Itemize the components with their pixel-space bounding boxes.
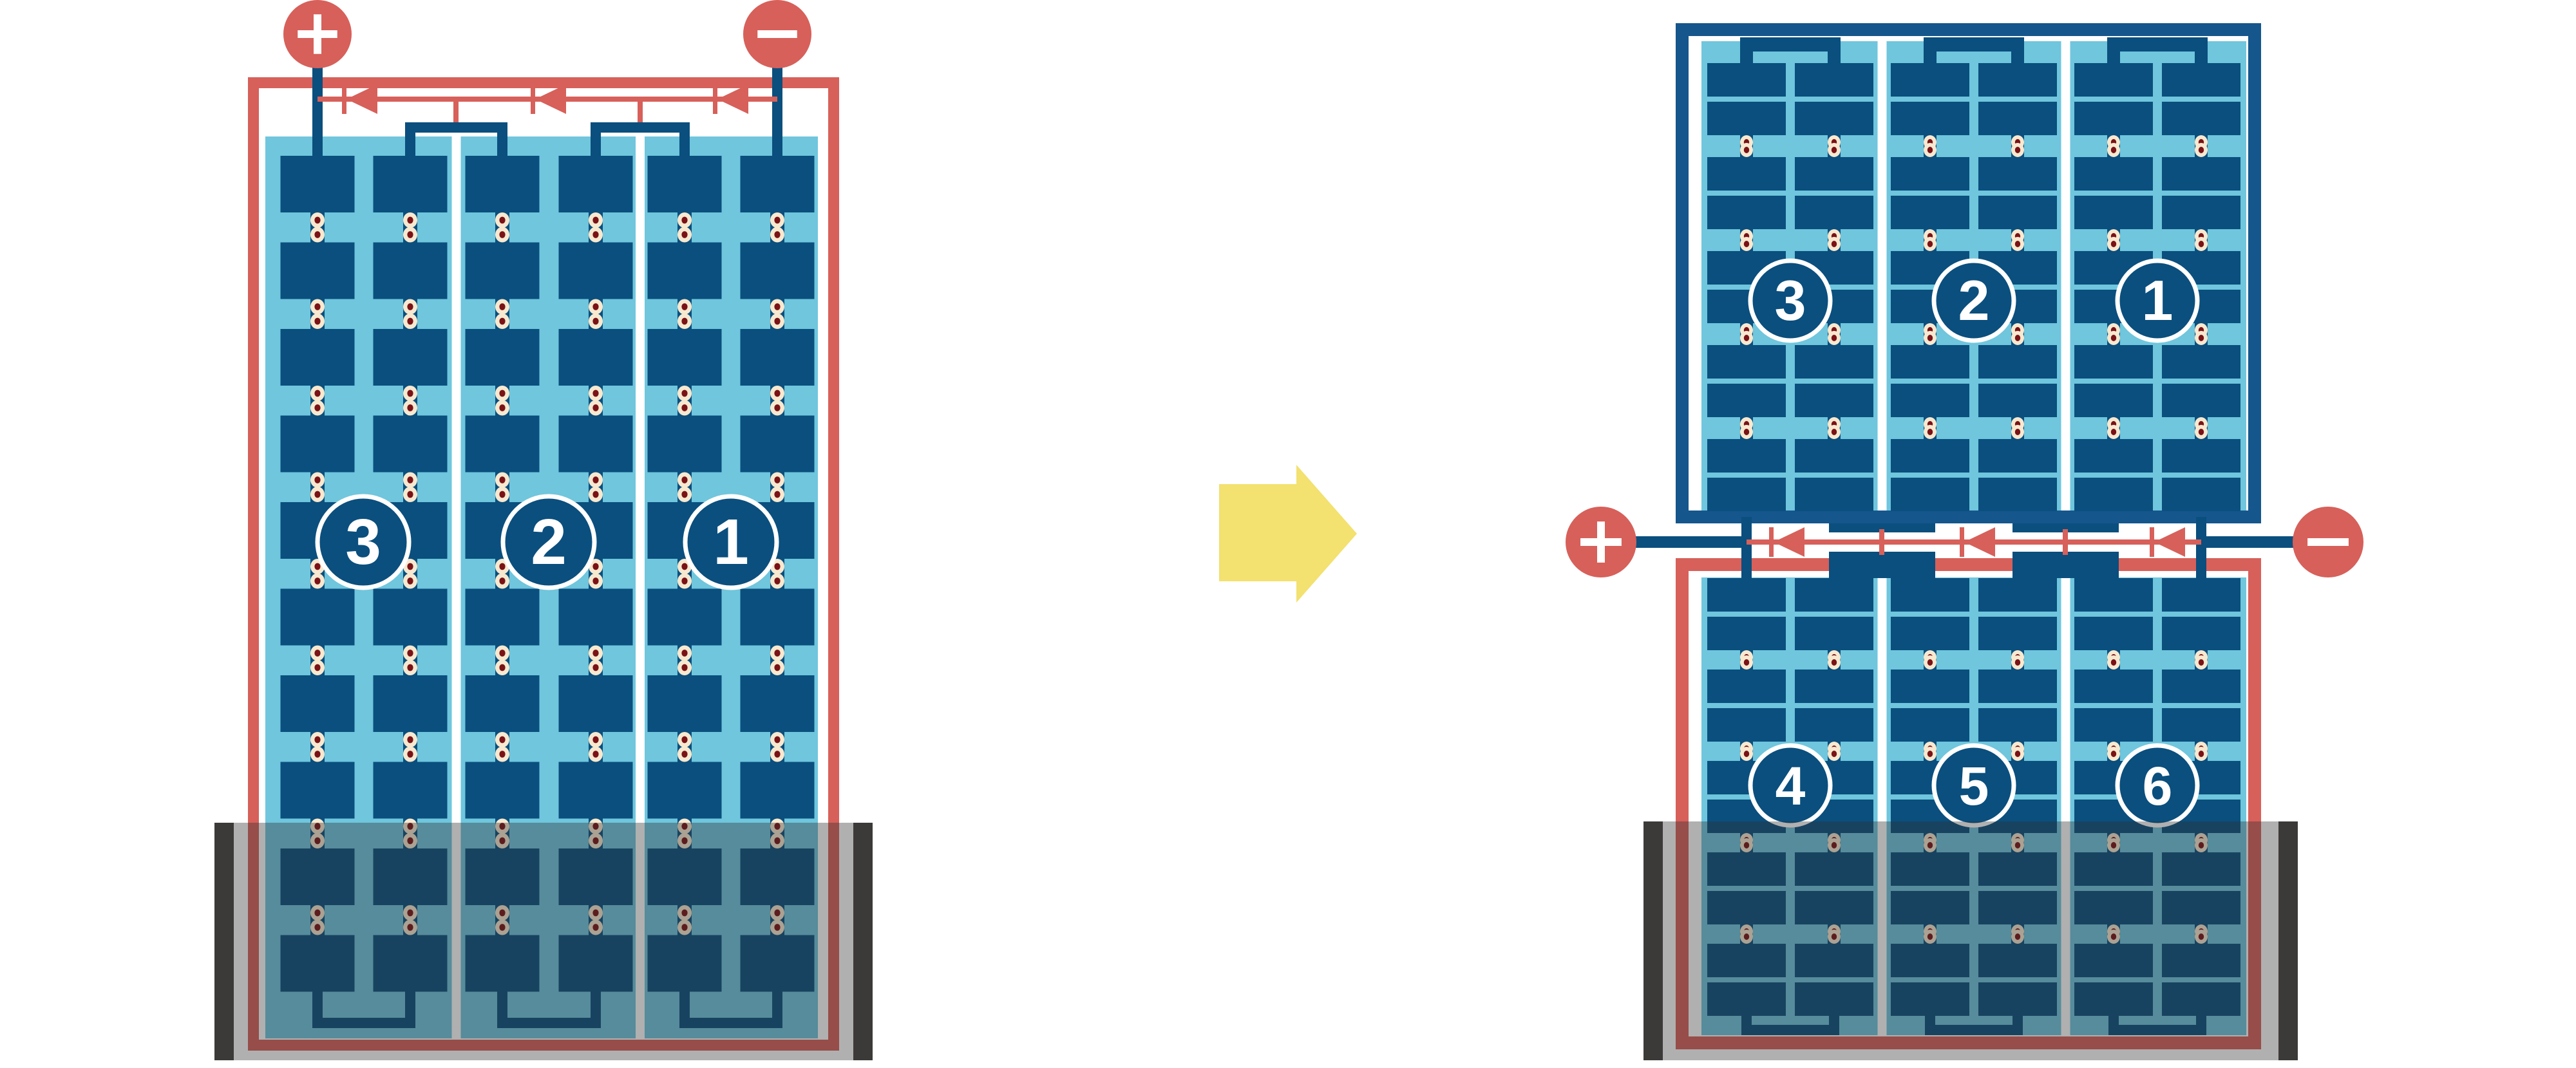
- solar-cell: [1891, 384, 1969, 417]
- solder-dot-core: [407, 563, 413, 570]
- solar-cell: [1978, 63, 2057, 97]
- solar-cell: [1978, 578, 2057, 612]
- solder-dot-core: [774, 318, 780, 325]
- solder-dot-core: [2111, 659, 2116, 666]
- solar-cell: [1891, 670, 1969, 703]
- series-jumper-leg: [405, 122, 415, 156]
- solar-cell: [1795, 157, 1873, 191]
- solar-cell: [648, 416, 722, 473]
- solar-cell: [741, 329, 815, 386]
- solar-cell: [559, 762, 633, 819]
- solder-dot-core: [314, 404, 320, 411]
- solder-dot-core: [681, 664, 687, 671]
- solder-dot-core: [314, 231, 320, 238]
- solar-cell: [1978, 196, 2057, 229]
- solar-cell: [559, 156, 633, 212]
- solar-cell: [1978, 384, 2057, 417]
- solar-cell: [466, 589, 540, 646]
- solar-cell: [1707, 102, 1786, 135]
- solar-cell: [1707, 708, 1786, 742]
- solder-dot-core: [681, 303, 687, 310]
- solar-cell: [1707, 439, 1786, 473]
- right-arrow-icon: [1219, 465, 1357, 603]
- solder-dot-core: [407, 217, 413, 224]
- substring-label: 2: [1958, 268, 1990, 332]
- solder-dot-core: [592, 476, 598, 483]
- shade-post: [2278, 821, 2298, 1060]
- solder-dot-core: [592, 404, 598, 411]
- substring-label: 2: [531, 506, 567, 578]
- solar-cell: [1978, 478, 2057, 511]
- solar-cell: [1707, 63, 1786, 97]
- shade-post: [214, 823, 234, 1060]
- solar-cell: [1891, 63, 1969, 97]
- solder-dot-core: [1927, 241, 1933, 247]
- solder-dot-core: [774, 404, 780, 411]
- solder-dot-core: [407, 390, 413, 397]
- solar-cell: [1795, 384, 1873, 417]
- split-jumper-tab: [2012, 552, 2119, 578]
- solar-cell: [1891, 478, 1969, 511]
- solder-dot-core: [2199, 429, 2204, 435]
- solar-cell: [1795, 708, 1873, 742]
- solar-cell: [374, 589, 448, 646]
- solder-dot-core: [592, 563, 598, 570]
- solar-cell: [648, 156, 722, 212]
- solder-dot-core: [2111, 147, 2116, 153]
- solder-dot-core: [2015, 147, 2020, 153]
- solder-dot-core: [2111, 751, 2116, 757]
- solar-cell: [466, 416, 540, 473]
- solar-cell: [1891, 102, 1969, 135]
- solder-dot-core: [499, 563, 505, 570]
- minus-icon: [757, 30, 797, 38]
- solder-dot-core: [499, 751, 505, 758]
- solder-dot-core: [407, 318, 413, 325]
- solar-cell: [1978, 617, 2057, 650]
- solder-dot-core: [774, 390, 780, 397]
- shape: [757, 30, 797, 38]
- column-gap: [2061, 41, 2070, 511]
- solar-cell: [2074, 439, 2153, 473]
- solder-dot-core: [592, 664, 598, 671]
- solder-dot-core: [592, 577, 598, 585]
- solar-cell: [281, 156, 355, 212]
- solar-cell: [1795, 345, 1873, 379]
- solar-cell: [2162, 63, 2240, 97]
- solder-dot-core: [407, 231, 413, 238]
- solder-dot-core: [774, 563, 780, 570]
- solar-cell: [1707, 670, 1786, 703]
- bypass-diode-icon: [1774, 527, 1804, 557]
- solder-dot-core: [314, 303, 320, 310]
- series-jumper-leg: [2195, 52, 2208, 64]
- bus-stub: [1879, 529, 1884, 555]
- solder-dot-core: [314, 390, 320, 397]
- solar-cell: [1891, 157, 1969, 191]
- solder-dot-core: [499, 664, 505, 671]
- solar-cell: [1891, 617, 1969, 650]
- shade-post: [1643, 821, 1663, 1060]
- minus-icon: [2307, 538, 2349, 546]
- solar-cell: [559, 329, 633, 386]
- solder-dot-core: [1744, 659, 1749, 666]
- substring-label: 3: [345, 506, 381, 578]
- solar-cell: [1978, 670, 2057, 703]
- solder-dot-core: [1744, 751, 1749, 757]
- solder-dot-core: [2199, 751, 2204, 757]
- solar-cell: [648, 243, 722, 299]
- solder-dot-core: [2015, 751, 2020, 757]
- solder-dot-core: [681, 563, 687, 570]
- solar-cell: [1978, 345, 2057, 379]
- solar-cell: [648, 762, 722, 819]
- solder-dot-core: [407, 736, 413, 744]
- solar-cell: [1707, 384, 1786, 417]
- solar-cell: [1707, 345, 1786, 379]
- solar-cell: [648, 675, 722, 732]
- solder-dot-core: [2015, 335, 2020, 341]
- solar-cell: [1795, 617, 1873, 650]
- solar-cell: [2074, 345, 2153, 379]
- solar-cell: [2162, 439, 2240, 473]
- solar-cell: [1795, 578, 1873, 612]
- solder-dot-core: [681, 577, 687, 585]
- shape: [314, 14, 321, 53]
- bypass-diode-icon: [535, 84, 566, 114]
- solder-dot-core: [499, 390, 505, 397]
- solder-dot-core: [592, 751, 598, 758]
- solar-cell: [2162, 708, 2240, 742]
- solder-dot-core: [314, 736, 320, 744]
- solar-cell: [1891, 196, 1969, 229]
- solar-cell: [281, 675, 355, 732]
- series-jumper: [1924, 37, 2024, 52]
- solar-cell: [1707, 157, 1786, 191]
- series-jumper-leg: [1828, 52, 1841, 64]
- solder-dot-core: [314, 751, 320, 758]
- solar-cell: [741, 243, 815, 299]
- diode-cathode-bar: [713, 84, 717, 114]
- solder-dot-core: [774, 650, 780, 657]
- solar-cell: [466, 329, 540, 386]
- transform-arrow-icon: [1219, 465, 1357, 603]
- solar-cell: [2162, 478, 2240, 511]
- series-jumper-leg: [1924, 52, 1937, 64]
- solder-dot-core: [407, 650, 413, 657]
- solar-cell: [2074, 670, 2153, 703]
- solar-cell: [374, 156, 448, 212]
- series-jumper: [405, 122, 507, 133]
- solar-cell: [741, 416, 815, 473]
- solar-cell: [741, 675, 815, 732]
- solder-dot-core: [407, 491, 413, 498]
- shape: [1597, 521, 1605, 563]
- solder-dot-core: [774, 231, 780, 238]
- solder-dot-core: [1744, 429, 1749, 435]
- solar-cell: [2074, 578, 2153, 612]
- solar-cell: [374, 762, 448, 819]
- solder-dot-core: [2111, 335, 2116, 341]
- solar-cell: [1891, 708, 1969, 742]
- solder-dot-core: [681, 476, 687, 483]
- solder-dot-core: [774, 303, 780, 310]
- solder-dot-core: [681, 404, 687, 411]
- solar-cell: [2074, 157, 2153, 191]
- solder-dot-core: [681, 491, 687, 498]
- solar-cell: [2162, 578, 2240, 612]
- column-gap: [1878, 41, 1887, 511]
- diode-cathode-bar: [2150, 527, 2154, 557]
- solar-cell: [648, 589, 722, 646]
- solar-cell: [1795, 102, 1873, 135]
- solder-dot-core: [314, 318, 320, 325]
- positive-lead: [1633, 536, 1741, 548]
- solder-dot-core: [314, 563, 320, 570]
- series-jumper-leg: [679, 122, 690, 156]
- solder-dot-core: [592, 303, 598, 310]
- solar-cell: [1978, 102, 2057, 135]
- series-jumper: [1740, 37, 1841, 52]
- negative-lead: [2206, 536, 2294, 548]
- solar-cell: [559, 589, 633, 646]
- solar-cell: [2074, 102, 2153, 135]
- solder-dot-core: [1744, 335, 1749, 341]
- solar-cell: [1795, 439, 1873, 473]
- series-jumper: [591, 122, 690, 133]
- solar-cell: [374, 243, 448, 299]
- solder-dot-core: [592, 736, 598, 744]
- solder-dot-core: [1832, 751, 1837, 757]
- solar-cell: [741, 589, 815, 646]
- solar-cell: [1707, 578, 1786, 612]
- solar-cell: [1891, 439, 1969, 473]
- solar-cell: [374, 675, 448, 732]
- bypass-diode-icon: [346, 84, 377, 114]
- solar-cell: [2074, 478, 2153, 511]
- solder-dot-core: [499, 577, 505, 585]
- solder-dot-core: [2015, 429, 2020, 435]
- series-jumper-leg: [2011, 52, 2024, 64]
- shade-overlays: [214, 821, 2298, 1060]
- solder-dot-core: [499, 303, 505, 310]
- negative-lead: [772, 64, 782, 156]
- split-jumper-tab: [1829, 552, 1935, 578]
- solar-cell: [1707, 478, 1786, 511]
- solder-dot-core: [681, 231, 687, 238]
- solar-cell: [2074, 617, 2153, 650]
- solder-dot-core: [681, 390, 687, 397]
- solar-cell: [2162, 102, 2240, 135]
- solar-cell: [2074, 196, 2153, 229]
- solar-cell: [1707, 617, 1786, 650]
- junction-vertical-link: [1741, 517, 1752, 578]
- substring-label: 6: [2143, 756, 2173, 816]
- solder-dot-core: [407, 751, 413, 758]
- solder-dot-core: [314, 664, 320, 671]
- solar-cell: [281, 243, 355, 299]
- shade-overlay: [1643, 821, 2298, 1060]
- diode-cathode-bar: [342, 84, 346, 114]
- bypass-diode-icon: [1964, 527, 1995, 557]
- solder-dot-core: [592, 231, 598, 238]
- solder-dot-core: [774, 491, 780, 498]
- solder-dot-core: [1927, 147, 1933, 153]
- positive-lead: [312, 64, 323, 156]
- solder-dot-core: [681, 318, 687, 325]
- solder-dot-core: [499, 476, 505, 483]
- solder-dot-core: [774, 577, 780, 585]
- solar-cell: [374, 329, 448, 386]
- solar-cell: [466, 243, 540, 299]
- solder-dot-core: [407, 303, 413, 310]
- bypass-diode-icon: [717, 84, 748, 114]
- solder-dot-core: [774, 751, 780, 758]
- solder-dot-core: [1832, 241, 1837, 247]
- diode-cathode-bar: [531, 84, 535, 114]
- solder-dot-core: [1927, 429, 1933, 435]
- solar-cell: [1707, 196, 1786, 229]
- solar-cell: [281, 329, 355, 386]
- solar-cell: [2162, 345, 2240, 379]
- diagram-canvas: 321 321 456: [0, 0, 2576, 1068]
- solar-cell: [281, 589, 355, 646]
- solar-cell: [559, 416, 633, 473]
- solar-cell: [466, 762, 540, 819]
- solar-cell: [1978, 439, 2057, 473]
- solder-dot-core: [681, 736, 687, 744]
- solar-cell: [648, 329, 722, 386]
- solder-dot-core: [2111, 241, 2116, 247]
- solder-dot-core: [1927, 659, 1933, 666]
- series-jumper-leg: [591, 122, 601, 156]
- solder-dot-core: [499, 231, 505, 238]
- solder-dot-core: [407, 404, 413, 411]
- solder-dot-core: [2015, 659, 2020, 666]
- solar-cell: [281, 762, 355, 819]
- solder-dot-core: [1744, 147, 1749, 153]
- solar-cell: [281, 416, 355, 473]
- bus-stub: [2063, 529, 2068, 555]
- solar-cell: [2162, 384, 2240, 417]
- solder-dot-core: [407, 577, 413, 585]
- shape: [2307, 538, 2349, 546]
- solder-dot-core: [499, 736, 505, 744]
- substring-label: 1: [713, 506, 749, 578]
- solder-dot-core: [2199, 335, 2204, 341]
- bus-stub: [453, 97, 459, 122]
- solder-dot-core: [314, 217, 320, 224]
- solder-dot-core: [407, 664, 413, 671]
- solar-cell: [1795, 670, 1873, 703]
- solar-cell: [1795, 196, 1873, 229]
- solar-cell: [466, 156, 540, 212]
- shade-post: [853, 823, 873, 1060]
- solar-cell: [2162, 670, 2240, 703]
- substring-label: 3: [1775, 268, 1806, 332]
- solder-dot-core: [314, 476, 320, 483]
- series-jumper: [2107, 37, 2208, 52]
- solar-cell: [2162, 157, 2240, 191]
- solar-cell: [2074, 63, 2153, 97]
- shade-overlay: [214, 823, 873, 1060]
- right-top-panel: 321: [1682, 30, 2255, 517]
- series-jumper-leg: [2107, 52, 2120, 64]
- solder-dot-core: [592, 491, 598, 498]
- solar-cell: [1978, 708, 2057, 742]
- solder-dot-core: [774, 736, 780, 744]
- solder-dot-core: [499, 217, 505, 224]
- solar-cell: [374, 416, 448, 473]
- solder-dot-core: [499, 318, 505, 325]
- solder-dot-core: [1832, 659, 1837, 666]
- wiring-diagram: 321 321 456: [0, 0, 2576, 1068]
- solder-dot-core: [681, 650, 687, 657]
- solder-dot-core: [1832, 429, 1837, 435]
- solar-cell: [1795, 63, 1873, 97]
- substring-label: 4: [1776, 756, 1806, 816]
- solar-cell: [1795, 478, 1873, 511]
- series-jumper-leg: [1740, 52, 1753, 64]
- solder-dot-core: [407, 476, 413, 483]
- solder-dot-core: [314, 650, 320, 657]
- solar-cell: [559, 675, 633, 732]
- solar-cell: [2162, 196, 2240, 229]
- diode-cathode-bar: [1960, 527, 1964, 557]
- solder-dot-core: [592, 390, 598, 397]
- solar-cell: [2074, 384, 2153, 417]
- solder-dot-core: [681, 217, 687, 224]
- solder-dot-core: [499, 491, 505, 498]
- solder-dot-core: [592, 318, 598, 325]
- solder-dot-core: [774, 476, 780, 483]
- solder-dot-core: [1927, 751, 1933, 757]
- solder-dot-core: [774, 217, 780, 224]
- solder-dot-core: [681, 751, 687, 758]
- bypass-diode-icon: [2154, 527, 2185, 557]
- solder-dot-core: [592, 650, 598, 657]
- solder-dot-core: [1832, 147, 1837, 153]
- solder-dot-core: [592, 217, 598, 224]
- solder-dot-core: [1832, 335, 1837, 341]
- solder-dot-core: [2199, 659, 2204, 666]
- solder-dot-core: [2199, 241, 2204, 247]
- bus-stub: [638, 97, 643, 122]
- solar-cell: [559, 243, 633, 299]
- junction-vertical-link: [2196, 517, 2206, 578]
- series-jumper-leg: [497, 122, 507, 156]
- solder-dot-core: [1927, 335, 1933, 341]
- solder-dot-core: [1744, 241, 1749, 247]
- solder-dot-core: [499, 404, 505, 411]
- substring-label: 5: [1959, 756, 1989, 816]
- solar-cell: [1891, 578, 1969, 612]
- solder-dot-core: [2111, 429, 2116, 435]
- solar-cell: [741, 156, 815, 212]
- diode-cathode-bar: [1769, 527, 1774, 557]
- solder-dot-core: [774, 664, 780, 671]
- solar-cell: [741, 762, 815, 819]
- solder-dot-core: [314, 577, 320, 585]
- solar-cell: [1891, 345, 1969, 379]
- solder-dot-core: [2015, 241, 2020, 247]
- substring-label: 1: [2142, 268, 2173, 332]
- solar-cell: [2074, 708, 2153, 742]
- solar-cell: [2162, 617, 2240, 650]
- solder-dot-core: [2199, 147, 2204, 153]
- solder-dot-core: [499, 650, 505, 657]
- solder-dot-core: [314, 491, 320, 498]
